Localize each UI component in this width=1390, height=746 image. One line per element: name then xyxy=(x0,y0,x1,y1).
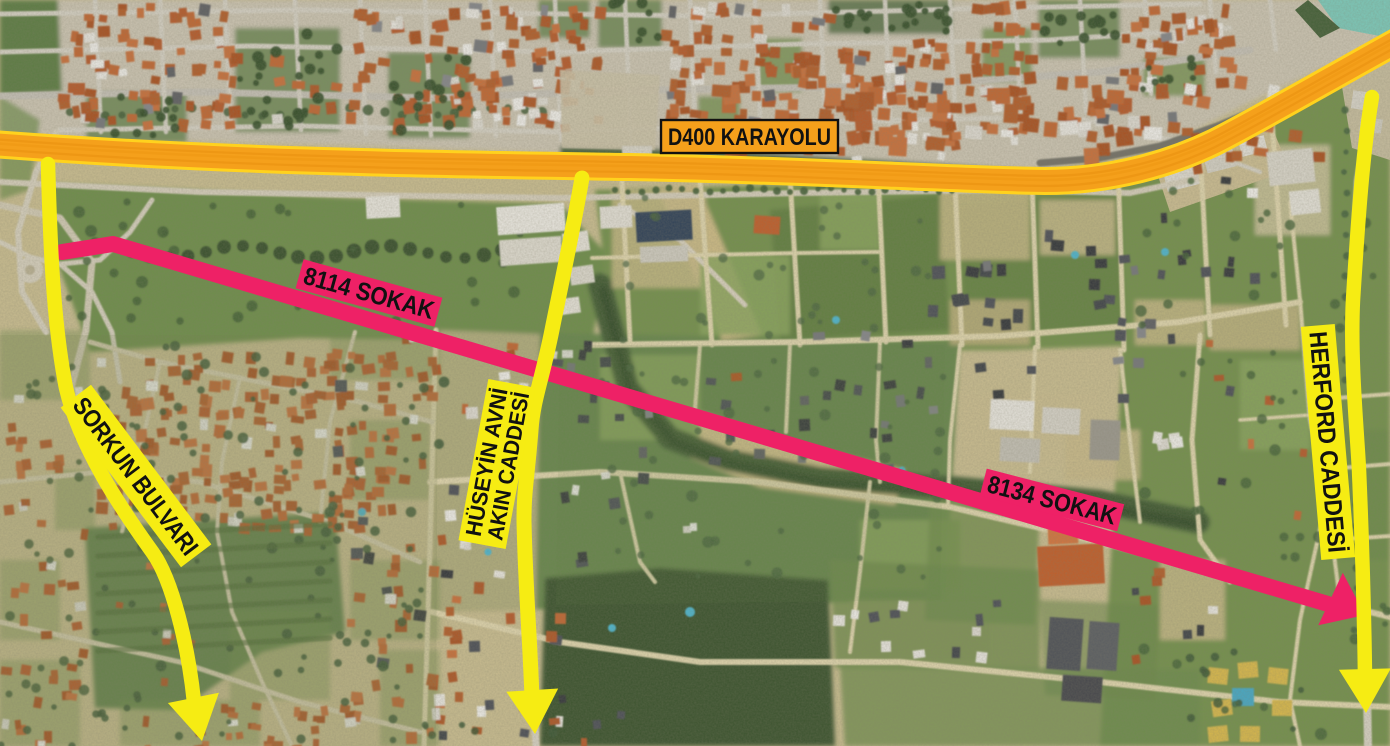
svg-text:D400 KARAYOLU: D400 KARAYOLU xyxy=(668,124,831,151)
